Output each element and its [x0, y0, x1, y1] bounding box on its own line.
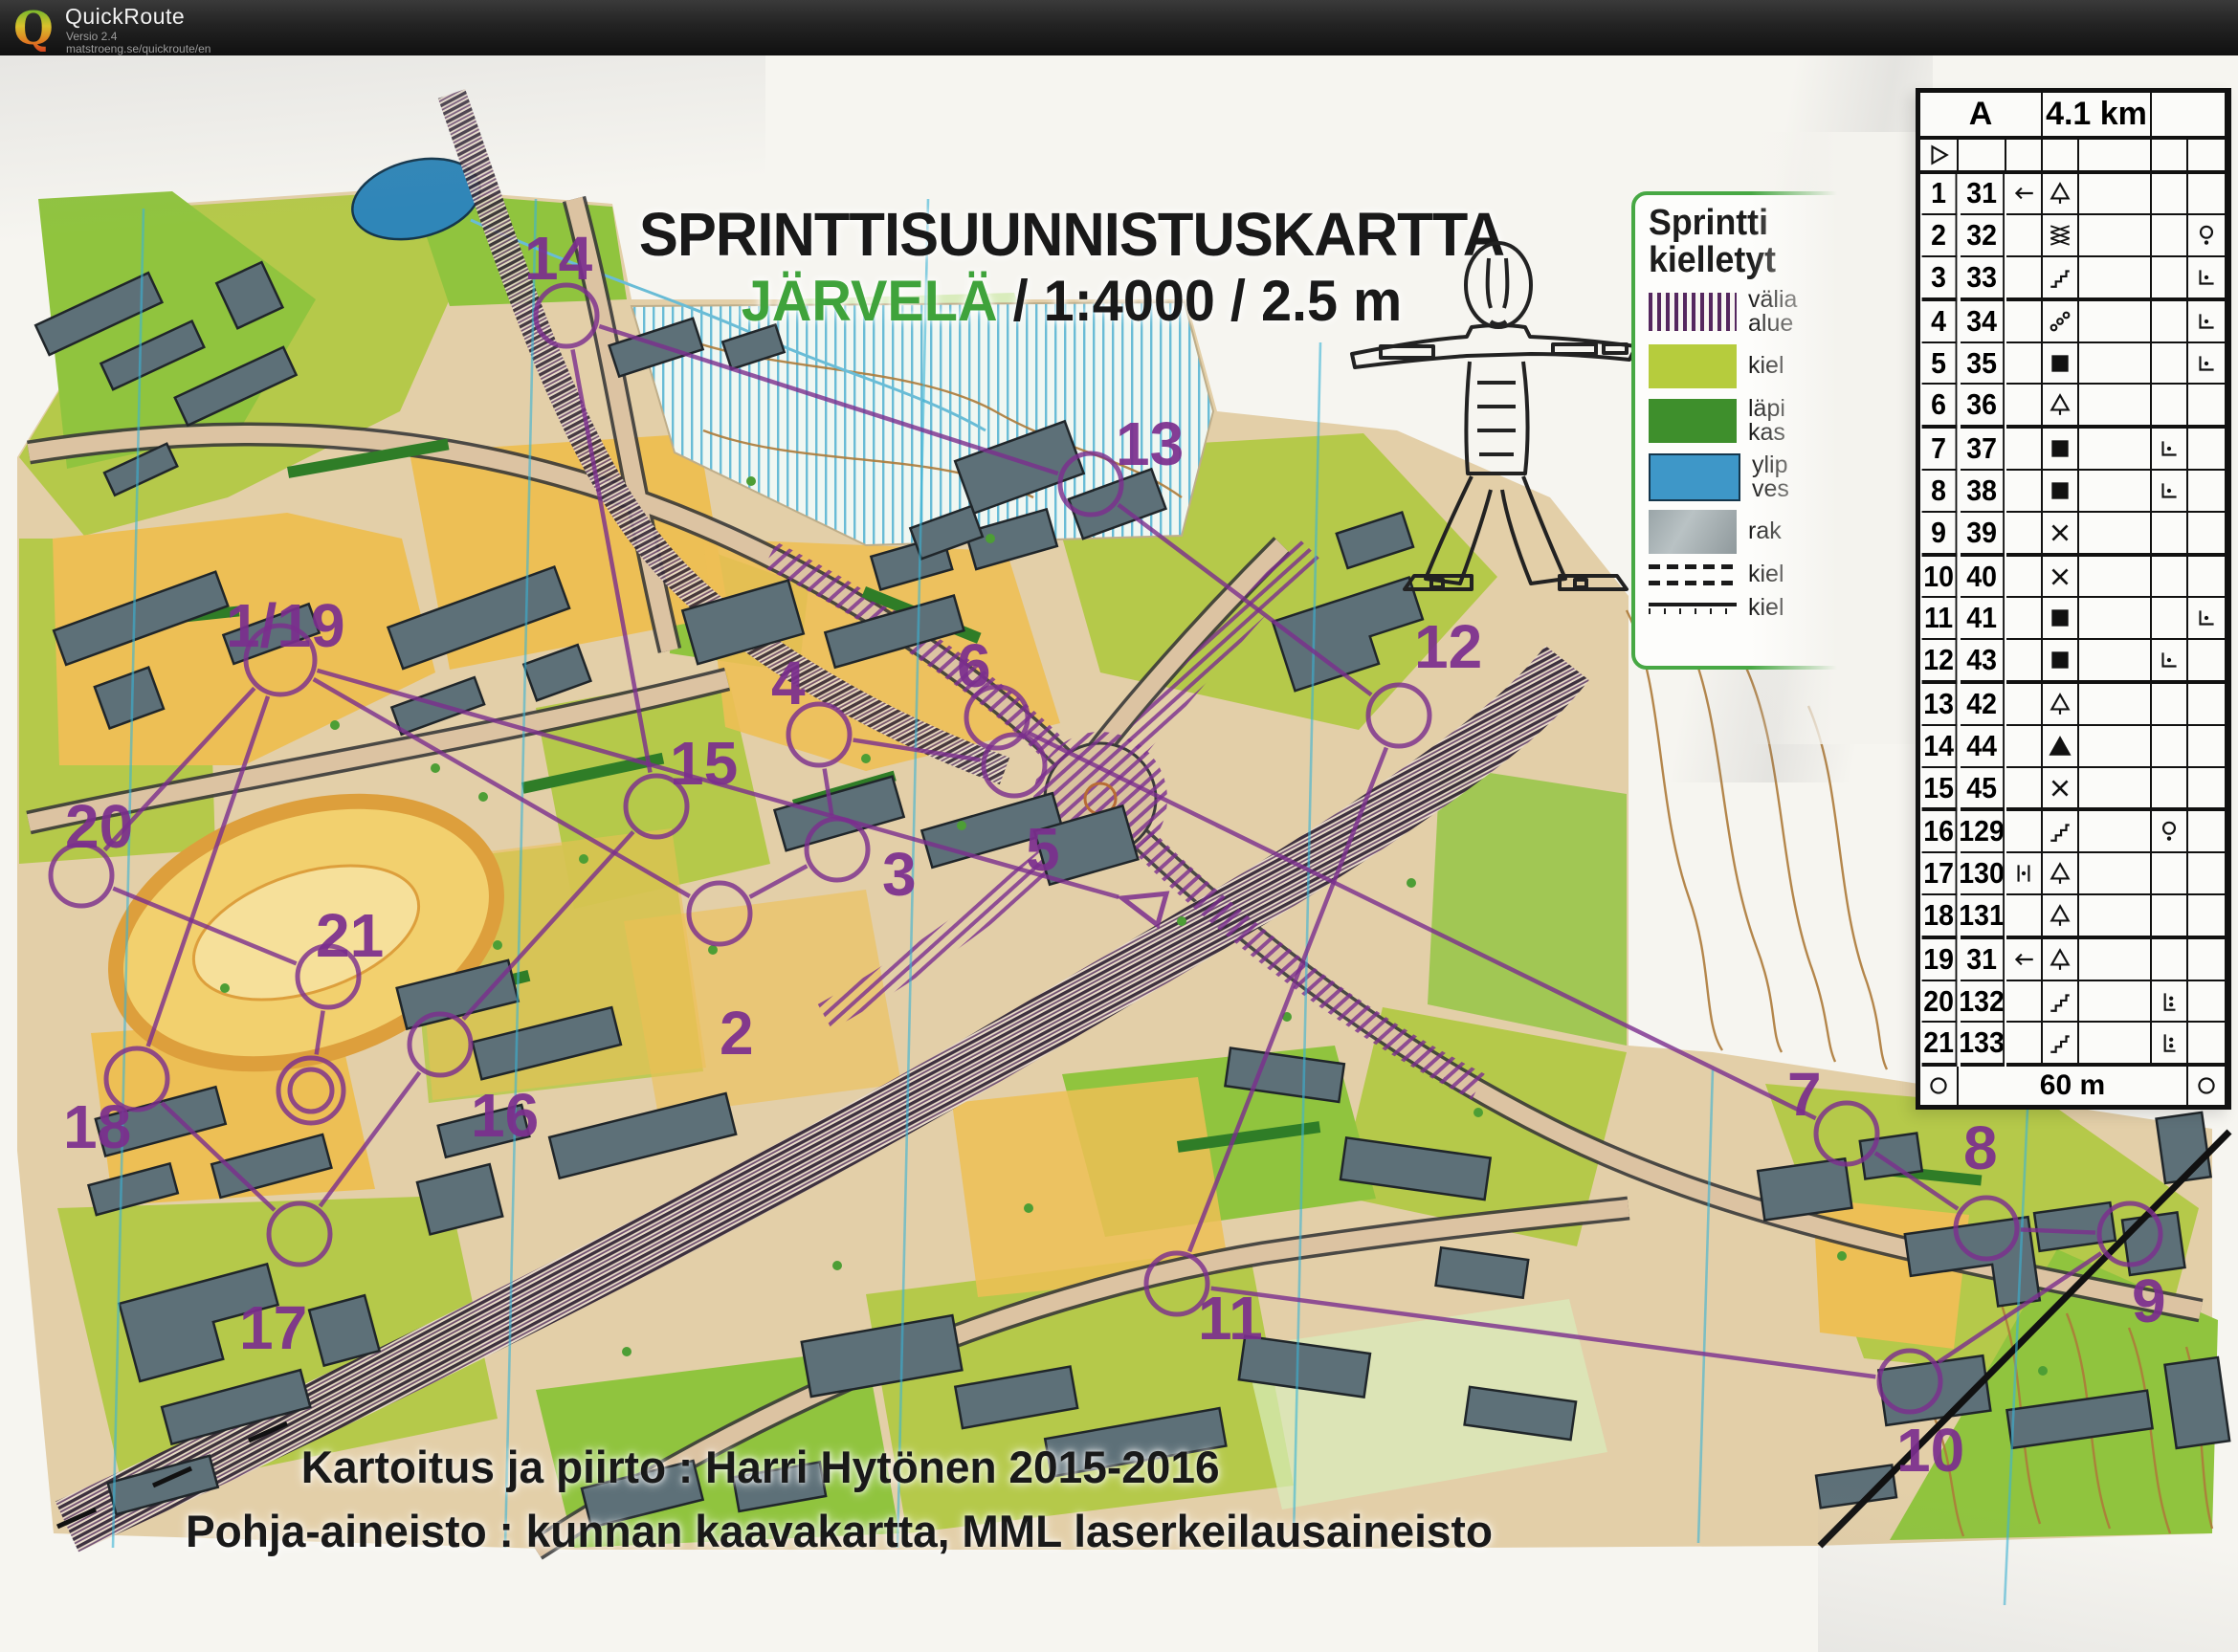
- control-code-cell: 37: [1961, 429, 2005, 471]
- card-empty-cell: [2152, 215, 2188, 257]
- control-number-cell: 5: [1922, 343, 1958, 385]
- card-empty-cell: [2006, 895, 2043, 939]
- control-code-cell: 40: [1961, 557, 2005, 599]
- forbidden-route-icon: [1649, 562, 1737, 587]
- legend-item-label: väliaalue: [1748, 288, 1797, 336]
- card-empty-cell: [2079, 471, 2116, 513]
- card-empty-cell: [2006, 343, 2043, 385]
- legend-item-label: ylipves: [1752, 453, 1789, 501]
- legend-item-label: rak: [1748, 519, 1782, 543]
- card-empty-cell: [2079, 513, 2116, 557]
- card-empty-cell: [2116, 429, 2152, 471]
- map-credit-line2: Pohja-aineisto : kunnan kaavakartta, MML…: [186, 1505, 1493, 1557]
- control-code-cell: 31: [1961, 939, 2005, 981]
- map-scale: / 1:4000 / 2.5 m: [998, 269, 1403, 333]
- card-empty-cell: [2006, 598, 2043, 640]
- card-empty-cell: [2079, 640, 2116, 684]
- control-code-cell: 34: [1961, 301, 2005, 343]
- uncrossable-fence-icon: [1649, 601, 1737, 614]
- card-empty-cell: [2152, 895, 2188, 939]
- card-empty-cell: [2116, 768, 2152, 812]
- card-empty-cell: [2006, 257, 2043, 301]
- control-code-cell: 42: [1961, 684, 2005, 726]
- control-number-cell: 20: [1922, 981, 1958, 1024]
- card-empty-cell: [2116, 640, 2152, 684]
- card-empty-cell: [2116, 257, 2152, 301]
- card-empty-cell: [2188, 140, 2227, 174]
- card-empty-cell: [2079, 768, 2116, 812]
- legend-title-line2: kielletyt: [1649, 242, 1857, 279]
- card-empty-cell: [2188, 385, 2227, 429]
- card-empty-cell: [2116, 598, 2152, 640]
- card-empty-cell: [2152, 557, 2188, 599]
- card-empty-cell: [2116, 557, 2152, 599]
- card-empty-cell: [2188, 684, 2227, 726]
- chain-icon: [2043, 301, 2079, 343]
- legend-item-label: läpikas: [1748, 397, 1785, 445]
- card-empty-cell: [2079, 895, 2116, 939]
- card-empty-cell: [2188, 429, 2227, 471]
- corner-dot-icon: [2152, 471, 2188, 513]
- control-number-cell: 9: [1922, 513, 1958, 557]
- card-empty-cell: [2152, 174, 2188, 216]
- card-empty-cell: [2152, 853, 2188, 895]
- control-number-cell: 18: [1922, 895, 1958, 939]
- card-empty-cell: [2006, 981, 2043, 1024]
- legend-item: kiel: [1649, 344, 1871, 388]
- app-url: matstroeng.se/quickroute/en: [66, 42, 211, 55]
- card-empty-cell: [2006, 385, 2043, 429]
- card-empty-cell: [2188, 513, 2227, 557]
- card-empty-cell: [2188, 811, 2227, 853]
- card-empty-cell: [2152, 301, 2188, 343]
- tower-icon: [2043, 684, 2079, 726]
- card-empty-cell: [2116, 1023, 2152, 1067]
- control-number-cell: 17: [1922, 853, 1958, 895]
- control-code-cell: 36: [1961, 385, 2005, 429]
- arrow-left-icon: [2006, 939, 2043, 981]
- card-empty-cell: [2079, 811, 2116, 853]
- control-number-cell: 21: [1922, 1023, 1958, 1067]
- card-empty-cell: [2188, 981, 2227, 1024]
- corner-2dot-icon: [2152, 981, 2188, 1024]
- control-code-cell: 31: [1961, 174, 2005, 216]
- building-icon: [2043, 343, 2079, 385]
- control-code-cell: 129: [1961, 811, 2005, 853]
- control-number-cell: 7: [1922, 429, 1958, 471]
- tower-icon: [2043, 853, 2079, 895]
- corner-dot-icon: [2188, 257, 2227, 301]
- legend-item-label: kiel: [1748, 354, 1784, 378]
- card-empty-cell: [2079, 981, 2116, 1024]
- course-length-cell: 4.1 km: [2043, 93, 2152, 140]
- building-icon: [2043, 429, 2079, 471]
- corner-2dot-icon: [2152, 1023, 2188, 1067]
- card-empty-cell: [2006, 301, 2043, 343]
- x-icon: [2043, 557, 2079, 599]
- legend-item: ylipves: [1649, 453, 1871, 501]
- card-empty-cell: [2152, 768, 2188, 812]
- legend-item-label: kiel: [1748, 562, 1784, 586]
- tower-icon: [2043, 895, 2079, 939]
- card-empty-cell: [2188, 174, 2227, 216]
- card-empty-cell: [2079, 853, 2116, 895]
- control-code-cell: 35: [1961, 343, 2005, 385]
- svg-text:Q: Q: [13, 4, 54, 52]
- card-empty-cell: [2079, 343, 2116, 385]
- course-label-cell: A: [1920, 93, 2043, 140]
- card-empty-cell: [2116, 343, 2152, 385]
- card-empty-cell: [2152, 939, 2188, 981]
- control-code-cell: 133: [1961, 1023, 2005, 1067]
- control-code-cell: 44: [1961, 726, 2005, 768]
- control-number-cell: 14: [1922, 726, 1958, 768]
- card-empty-cell: [2152, 598, 2188, 640]
- legend-item-label: kiel: [1748, 596, 1784, 620]
- legend-item: läpikas: [1649, 397, 1871, 445]
- card-empty-cell: [2116, 301, 2152, 343]
- tower-icon: [2043, 174, 2079, 216]
- x-icon: [2043, 768, 2079, 812]
- control-number-cell: 10: [1922, 557, 1958, 599]
- building-icon: [2043, 598, 2079, 640]
- card-empty-cell: [2188, 557, 2227, 599]
- card-empty-cell: [2079, 301, 2116, 343]
- start-symbol-cell: [1920, 140, 1959, 174]
- control-number-cell: 1: [1922, 174, 1958, 216]
- control-number-cell: 3: [1922, 257, 1958, 301]
- legend-item: kiel: [1649, 562, 1871, 587]
- control-description-card: A4.1 km131232333434535636737838939104011…: [1916, 88, 2231, 1110]
- tower-icon: [2043, 385, 2079, 429]
- card-empty-cell: [2116, 939, 2152, 981]
- card-empty-cell: [2006, 140, 2043, 174]
- card-empty-cell: [2188, 768, 2227, 812]
- app-titlebar: Q QuickRoute Versio 2.4 matstroeng.se/qu…: [0, 0, 2238, 55]
- card-empty-cell: [2006, 640, 2043, 684]
- card-empty-cell: [2043, 140, 2079, 174]
- control-number-cell: 15: [1922, 768, 1958, 812]
- card-empty-cell: [2079, 726, 2116, 768]
- card-empty-cell: [2006, 557, 2043, 599]
- card-empty-cell: [2006, 684, 2043, 726]
- legend-item: kiel: [1649, 596, 1871, 620]
- control-number-cell: 11: [1922, 598, 1958, 640]
- card-empty-cell: [2188, 640, 2227, 684]
- corner-dot-icon: [2152, 429, 2188, 471]
- building-icon: [1649, 510, 1737, 554]
- stairs-icon: [2043, 257, 2079, 301]
- corner-dot-icon: [2188, 301, 2227, 343]
- control-number-cell: 13: [1922, 684, 1958, 726]
- control-code-cell: 130: [1961, 853, 2005, 895]
- card-empty-cell: [2116, 684, 2152, 726]
- control-code-cell: 43: [1961, 640, 2005, 684]
- card-empty-cell: [2188, 726, 2227, 768]
- card-empty-cell: [2116, 385, 2152, 429]
- card-empty-cell: [2116, 471, 2152, 513]
- map-legend: Sprintti kielletyt väliaaluekielläpikasy…: [1631, 191, 1882, 670]
- card-empty-cell: [2006, 215, 2043, 257]
- card-empty-cell: [2006, 726, 2043, 768]
- card-empty-cell: [2006, 429, 2043, 471]
- card-empty-cell: [2152, 140, 2188, 174]
- control-number-cell: 19: [1922, 939, 1958, 981]
- control-code-cell: 32: [1961, 215, 2005, 257]
- impassable-vegetation-icon: [1649, 399, 1737, 443]
- card-empty-cell: [1959, 140, 2006, 174]
- card-empty-cell: [2006, 1023, 2043, 1067]
- quickroute-window: Q QuickRoute Versio 2.4 matstroeng.se/qu…: [0, 0, 2238, 1652]
- forbidden-area-stripes-icon: [1649, 293, 1737, 331]
- control-code-cell: 131: [1961, 895, 2005, 939]
- human-figure-drawing: [1347, 239, 1644, 603]
- card-empty-cell: [2188, 1023, 2227, 1067]
- map-canvas[interactable]: SPRINTTISUUNNISTUSKARTTA JÄRVELÄ / 1:400…: [0, 55, 2238, 1652]
- uncrossable-water-icon: [1649, 453, 1740, 501]
- card-empty-cell: [2006, 471, 2043, 513]
- app-version: Versio 2.4: [66, 30, 117, 43]
- legend-item: väliaalue: [1649, 288, 1871, 336]
- card-empty-cell: [2188, 853, 2227, 895]
- stairs-icon: [2043, 811, 2079, 853]
- card-empty-cell: [2006, 513, 2043, 557]
- building-icon: [2043, 471, 2079, 513]
- card-empty-cell: [2152, 343, 2188, 385]
- control-code-cell: 39: [1961, 513, 2005, 557]
- control-code-cell: 41: [1961, 598, 2005, 640]
- card-empty-cell: [2116, 513, 2152, 557]
- corner-dot-icon: [2188, 598, 2227, 640]
- card-empty-cell: [2006, 811, 2043, 853]
- map-credit-line1: Kartoitus ja piirto : Harri Hytönen 2015…: [301, 1441, 1220, 1493]
- card-empty-cell: [2116, 895, 2152, 939]
- card-empty-cell: [2079, 598, 2116, 640]
- card-empty-cell: [2116, 140, 2152, 174]
- card-empty-cell: [2079, 684, 2116, 726]
- card-empty-cell: [2152, 513, 2188, 557]
- app-name: QuickRoute: [65, 4, 185, 30]
- between-icon: [2006, 853, 2043, 895]
- card-empty-cell: [2006, 768, 2043, 812]
- card-empty-cell: [2116, 811, 2152, 853]
- control-code-cell: 45: [1961, 768, 2005, 812]
- stairs-icon: [2043, 981, 2079, 1024]
- finish-circle-icon: [1920, 1067, 1959, 1105]
- card-empty-cell: [2079, 174, 2116, 216]
- card-empty-cell: [2079, 557, 2116, 599]
- building-icon: [2043, 640, 2079, 684]
- ring-dot-icon: [2188, 215, 2227, 257]
- corner-dot-icon: [2152, 640, 2188, 684]
- card-empty-cell: [2079, 257, 2116, 301]
- card-empty-cell: [2152, 385, 2188, 429]
- corner-dot-icon: [2188, 343, 2227, 385]
- legend-item: rak: [1649, 510, 1871, 554]
- card-empty-cell: [2079, 215, 2116, 257]
- control-number-cell: 6: [1922, 385, 1958, 429]
- map-name: JÄRVELÄ: [742, 269, 998, 333]
- forbidden-yard-icon: [1649, 344, 1737, 388]
- stairs-icon: [2043, 1023, 2079, 1067]
- card-empty-cell: [2079, 385, 2116, 429]
- ring-dot-icon: [2152, 811, 2188, 853]
- thicket-icon: [2043, 215, 2079, 257]
- card-empty-cell: [2188, 939, 2227, 981]
- control-code-cell: 132: [1961, 981, 2005, 1024]
- control-number-cell: 4: [1922, 301, 1958, 343]
- card-empty-cell: [2079, 939, 2116, 981]
- quickroute-logo-icon: Q: [11, 4, 55, 52]
- triangle-filled-icon: [2043, 726, 2079, 768]
- control-number-cell: 12: [1922, 640, 1958, 684]
- legend-title-line1: Sprintti: [1649, 205, 1857, 242]
- control-code-cell: 38: [1961, 471, 2005, 513]
- card-empty-cell: [2079, 140, 2116, 174]
- x-icon: [2043, 513, 2079, 557]
- card-empty-cell: [2079, 1023, 2116, 1067]
- card-empty-cell: [2116, 174, 2152, 216]
- card-empty-cell: [2152, 257, 2188, 301]
- control-number-cell: 16: [1922, 811, 1958, 853]
- card-empty-cell: [2188, 895, 2227, 939]
- finish-distance-cell: 60 m: [1959, 1067, 2188, 1105]
- finish-circle-icon: [2188, 1067, 2227, 1105]
- tower-icon: [2043, 939, 2079, 981]
- card-empty-cell: [2116, 726, 2152, 768]
- card-empty-cell: [2188, 471, 2227, 513]
- card-empty-cell: [2152, 684, 2188, 726]
- card-empty-cell: [2116, 853, 2152, 895]
- control-code-cell: 33: [1961, 257, 2005, 301]
- card-header-blank: [2152, 93, 2227, 140]
- control-number-cell: 8: [1922, 471, 1958, 513]
- card-empty-cell: [2152, 726, 2188, 768]
- card-empty-cell: [2116, 981, 2152, 1024]
- arrow-left-icon: [2006, 174, 2043, 216]
- card-empty-cell: [2116, 215, 2152, 257]
- control-number-cell: 2: [1922, 215, 1958, 257]
- card-empty-cell: [2079, 429, 2116, 471]
